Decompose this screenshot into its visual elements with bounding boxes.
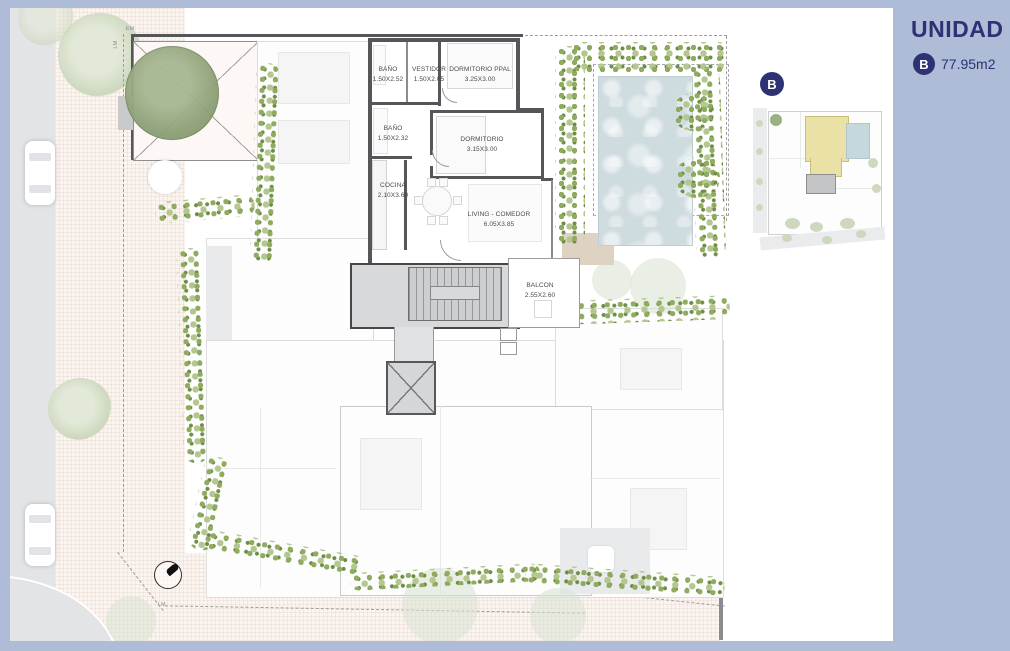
partition-wall xyxy=(406,42,408,104)
car-windshield xyxy=(29,515,51,523)
garden-table xyxy=(148,160,182,194)
room-dims: 1.50X2.32 xyxy=(378,134,409,144)
window-wall xyxy=(551,180,553,264)
room-label-bano-2: BAÑO 1.50X2.32 xyxy=(378,124,409,144)
page: { "sidebar": { "title": "UNIDAD", "unit"… xyxy=(0,0,1010,651)
chair xyxy=(439,216,448,225)
room-name: BALCON xyxy=(525,281,556,291)
service-shaft xyxy=(500,328,517,341)
room-name: BAÑO xyxy=(378,124,409,134)
chair xyxy=(439,178,448,187)
minimap-badge-letter: B xyxy=(767,77,776,92)
north-arrow-icon xyxy=(154,561,182,589)
dining-table xyxy=(422,186,452,216)
tree xyxy=(106,596,156,641)
panel-title: UNIDAD xyxy=(911,16,1003,43)
room-dims: 1.50X2.05 xyxy=(412,75,446,85)
room-name: BAÑO xyxy=(373,65,404,75)
unit-badge-letter: B xyxy=(919,57,928,72)
room-dims: 1.50X2.52 xyxy=(373,75,404,85)
floor-plan-canvas: EM LM LM +0.10 xyxy=(10,8,893,641)
minimap-tree xyxy=(770,114,782,126)
minimap-tree xyxy=(840,218,855,229)
partition-wall xyxy=(372,156,412,159)
shrub xyxy=(674,158,720,198)
parked-car xyxy=(25,504,55,566)
tree xyxy=(48,378,112,440)
unit-badge: B xyxy=(913,53,935,75)
minimap-unit-badge: B xyxy=(760,72,784,96)
wall-segment xyxy=(516,38,520,111)
minimap-tree xyxy=(756,178,763,185)
room-name: DORMITORIO xyxy=(460,135,503,145)
tree xyxy=(530,588,586,641)
boundary-label-em: EM xyxy=(126,27,134,33)
wall-segment xyxy=(541,108,544,181)
minimap-partition xyxy=(830,188,878,189)
room-label-cocina: COCINA 2.10X3.60 xyxy=(378,181,409,201)
kitchen-counter xyxy=(372,160,387,250)
room-dims: 3.25X3.00 xyxy=(449,75,511,85)
ghost-furniture xyxy=(360,438,422,510)
minimap-unit-b-highlight xyxy=(805,116,849,162)
minimap-tree xyxy=(756,204,763,211)
core-connector xyxy=(394,327,434,363)
minimap-partition xyxy=(800,112,801,168)
stair-rail xyxy=(430,286,480,300)
parked-car xyxy=(25,141,55,205)
car-windshield xyxy=(29,153,51,161)
minimap-tree xyxy=(785,218,800,229)
minimap-tree xyxy=(822,236,832,244)
car-rear-window xyxy=(29,547,51,555)
ghost-partition xyxy=(260,408,261,588)
room-name: VESTIDOR xyxy=(412,65,446,75)
balcony-table xyxy=(534,300,552,318)
hedge-planting xyxy=(555,46,585,246)
ghost-furniture xyxy=(278,120,350,164)
partition-wall xyxy=(430,110,543,113)
car-rear-window xyxy=(29,185,51,193)
service-shaft xyxy=(500,342,517,355)
elevator-shaft xyxy=(386,361,436,415)
ghost-partition xyxy=(590,478,720,479)
wall-segment xyxy=(368,38,520,42)
room-name: COCINA xyxy=(378,181,409,191)
ghost-furniture xyxy=(278,52,350,104)
ghost-furniture xyxy=(620,348,682,390)
chair xyxy=(414,196,423,205)
room-label-vestidor: VESTIDOR 1.50X2.05 xyxy=(412,65,446,85)
minimap-core xyxy=(806,174,836,194)
minimap-tree xyxy=(810,222,823,232)
partition-wall xyxy=(372,102,440,105)
minimap-tree xyxy=(756,148,763,155)
room-label-bano-1: BAÑO 1.50X2.52 xyxy=(373,65,404,85)
ghost-partition xyxy=(440,406,441,594)
room-dims: 2.55X2.60 xyxy=(525,291,556,301)
minimap-tree xyxy=(872,184,881,193)
minimap-pool xyxy=(846,123,870,159)
unit-info-panel: UNIDAD B 77.95m2 xyxy=(893,0,1010,651)
room-dims: 3.15X3.00 xyxy=(460,145,503,155)
tree xyxy=(592,260,632,300)
terrace xyxy=(206,246,232,342)
room-label-dormitorio: DORMITORIO 3.15X3.00 xyxy=(460,135,503,155)
room-name: LIVING - COMEDOR xyxy=(468,210,531,220)
room-dims: 6.05X3.85 xyxy=(468,220,531,230)
minimap-tree xyxy=(756,120,763,127)
courtyard-tree xyxy=(125,46,219,140)
minimap-tree xyxy=(782,234,792,242)
property-line-north xyxy=(520,35,727,37)
minimap-tree xyxy=(856,230,866,238)
room-dims: 2.10X3.60 xyxy=(378,191,409,201)
chair xyxy=(427,178,436,187)
chair xyxy=(453,196,462,205)
minimap-tree xyxy=(868,158,878,168)
room-label-balcon: BALCON 2.55X2.60 xyxy=(525,281,556,301)
chair xyxy=(427,216,436,225)
room-name: DORMITORIO PPAL xyxy=(449,65,511,75)
shrub xyxy=(672,93,714,131)
room-label-dormitorio-ppal: DORMITORIO PPAL 3.25X3.00 xyxy=(449,65,511,85)
partition-wall xyxy=(430,113,433,155)
north-needle xyxy=(165,563,179,577)
wall-segment xyxy=(131,34,523,37)
unit-area-value: 77.95m2 xyxy=(941,56,995,72)
boundary-label-lm: LM xyxy=(114,41,120,49)
partition-wall xyxy=(404,160,407,250)
boundary-label-lm-south: LM xyxy=(158,603,166,609)
room-label-living-comedor: LIVING - COMEDOR 6.05X3.85 xyxy=(468,210,531,230)
